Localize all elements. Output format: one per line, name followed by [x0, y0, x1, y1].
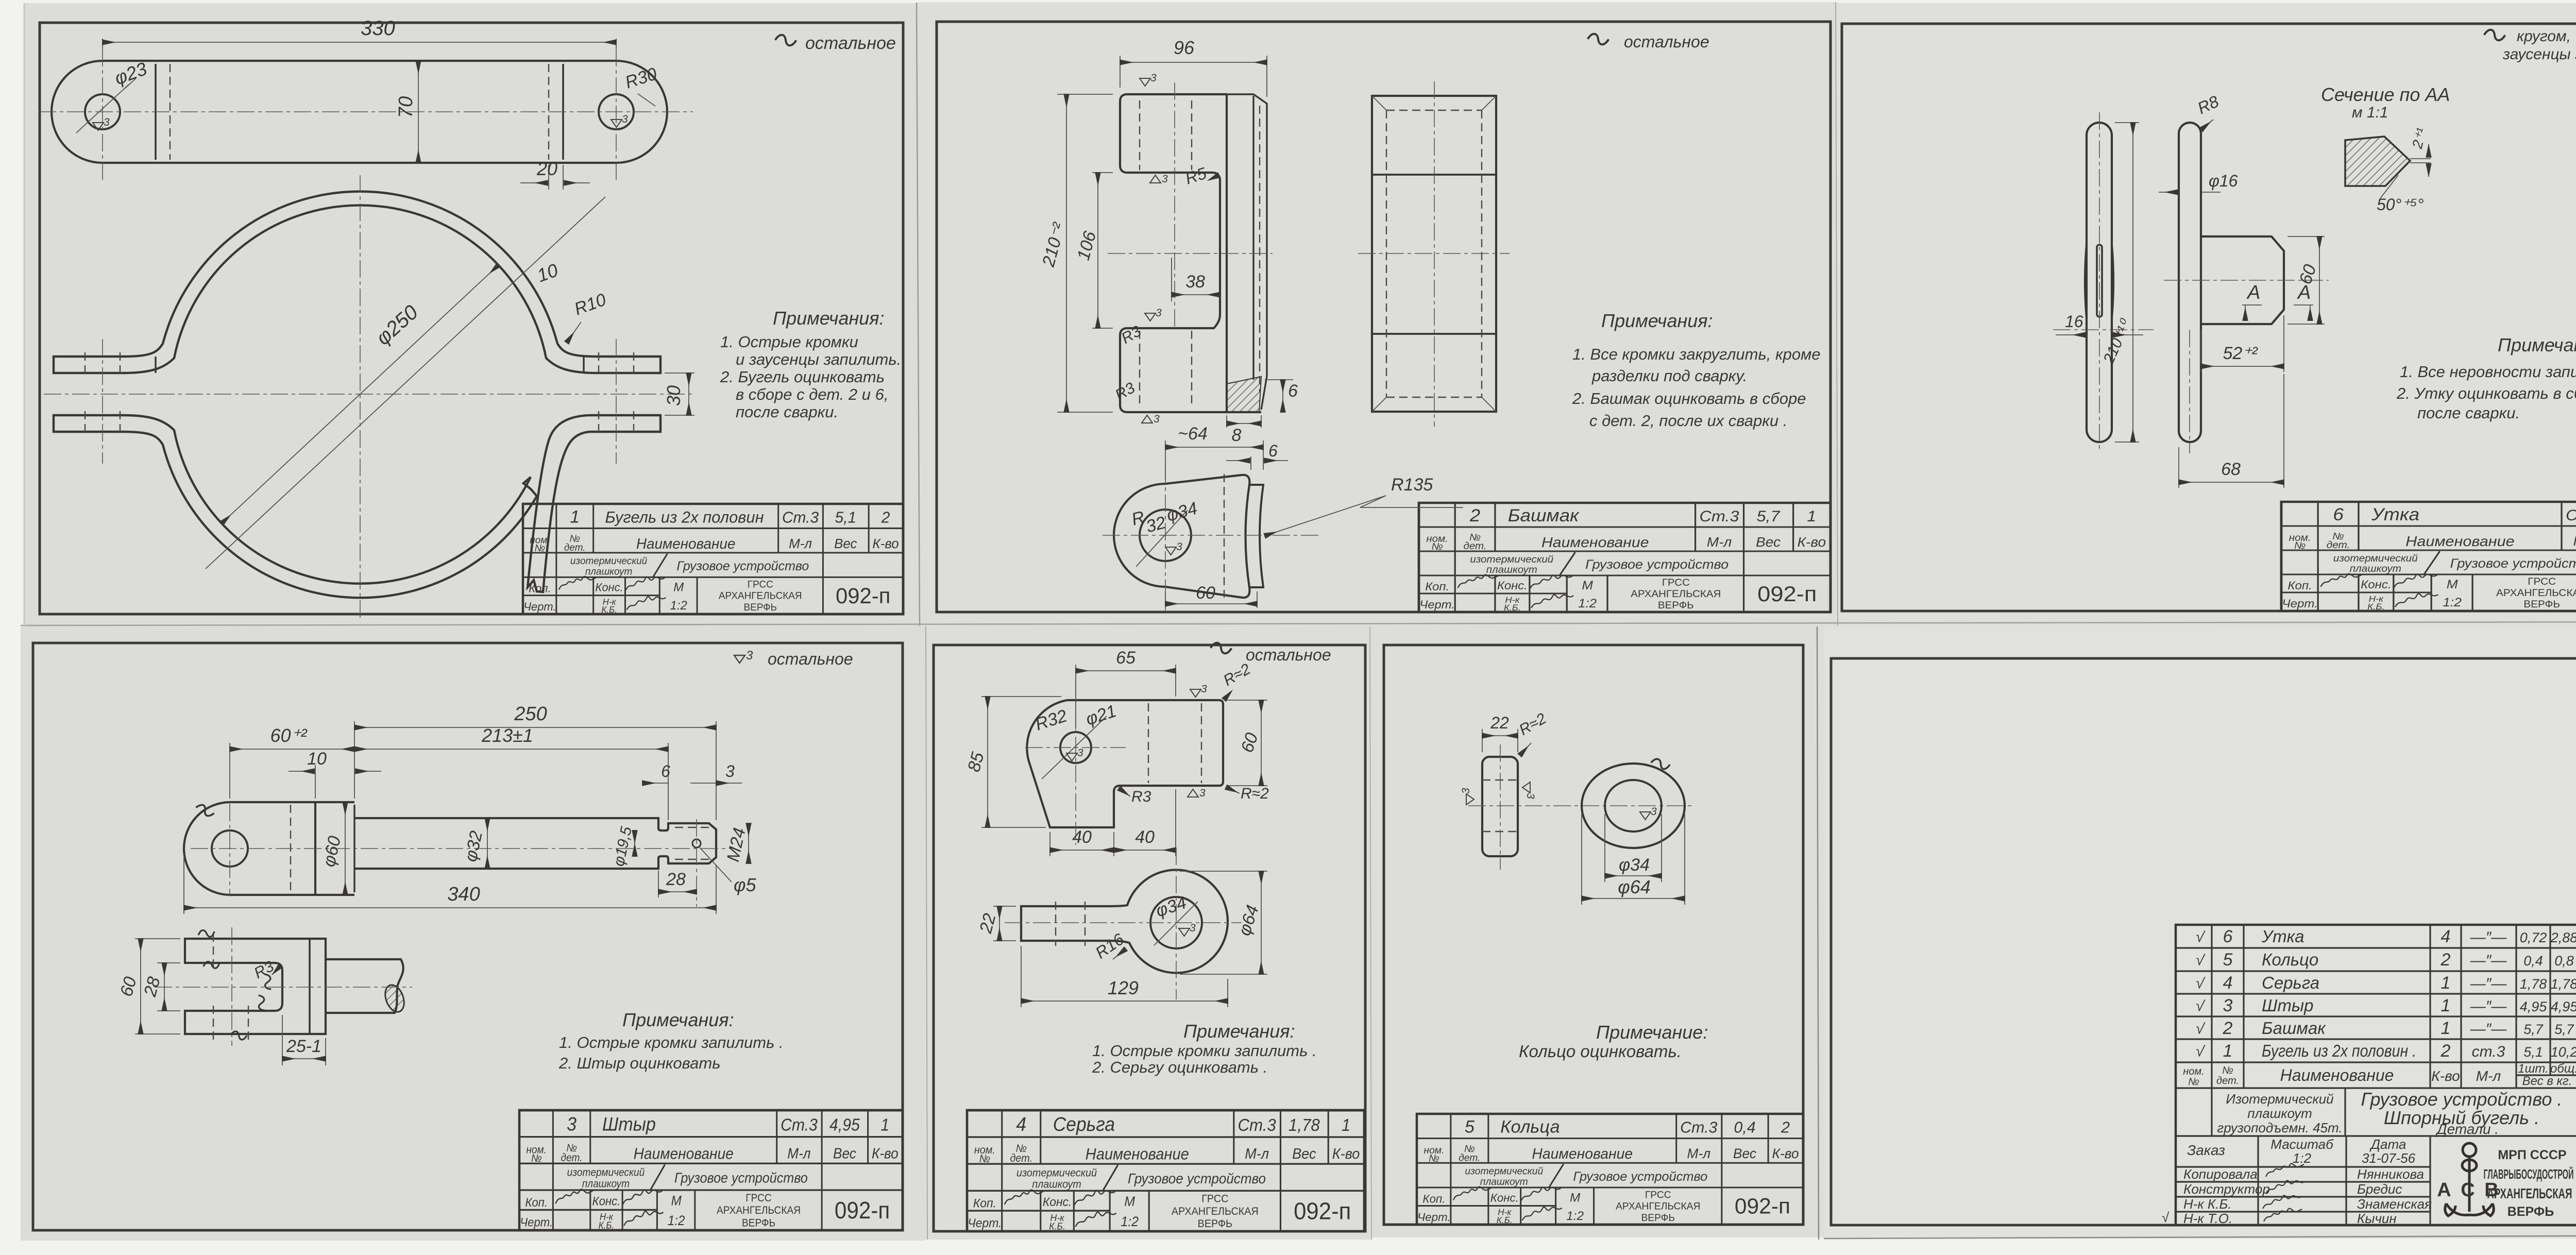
- svg-text:3: 3: [567, 1113, 577, 1135]
- svg-text:4,95: 4,95: [2551, 999, 2576, 1014]
- svg-text:40: 40: [1135, 827, 1155, 847]
- svg-text:АРХАНГЕЛЬСКАЯ: АРХАНГЕЛЬСКАЯ: [1172, 1206, 1259, 1217]
- svg-text:1:2: 1:2: [670, 599, 688, 613]
- svg-text:Башмак: Башмак: [1508, 506, 1580, 525]
- svg-text:213±1: 213±1: [481, 725, 533, 746]
- svg-text:5: 5: [1465, 1117, 1475, 1137]
- svg-text:М-л: М-л: [2476, 1068, 2501, 1084]
- svg-text:Кольца: Кольца: [1500, 1117, 1560, 1137]
- svg-text:60: 60: [1196, 583, 1215, 603]
- svg-text:250: 250: [514, 703, 547, 725]
- svg-text:М-л: М-л: [2573, 533, 2576, 549]
- svg-text:A: A: [2297, 282, 2311, 303]
- svg-text:092-п: 092-п: [1294, 1197, 1351, 1225]
- svg-text:Наименование: Наименование: [634, 1145, 734, 1162]
- svg-text:ВЕРФЬ: ВЕРФЬ: [1641, 1213, 1675, 1224]
- svg-text:дет.: дет.: [2327, 540, 2350, 551]
- svg-text:Изотермический: Изотермический: [2226, 1091, 2333, 1107]
- svg-text:1:2: 1:2: [2443, 596, 2462, 609]
- svg-text:изотермический: изотермический: [570, 556, 648, 567]
- svg-text:М-л: М-л: [789, 536, 812, 551]
- svg-text:1шт.: 1шт.: [2518, 1062, 2549, 1076]
- svg-text:дет.: дет.: [1464, 541, 1487, 552]
- svg-text:К.Б.: К.Б.: [1504, 603, 1521, 613]
- svg-text:Ст.3: Ст.3: [781, 1115, 818, 1134]
- svg-text:ВЕРФЬ: ВЕРФЬ: [2507, 1205, 2554, 1219]
- svg-text:φ16: φ16: [2209, 172, 2238, 190]
- svg-text:изотермический: изотермический: [1016, 1167, 1097, 1179]
- svg-text:К-во: К-во: [1798, 535, 1826, 550]
- svg-text:4: 4: [1016, 1113, 1026, 1135]
- svg-text:Коп.: Коп.: [525, 1195, 548, 1209]
- svg-text:Бугель из 2х половин .: Бугель из 2х половин .: [2262, 1041, 2416, 1060]
- svg-text:ВЕРФЬ: ВЕРФЬ: [742, 1217, 775, 1229]
- svg-text:Черт.: Черт.: [520, 1215, 553, 1229]
- svg-text:68: 68: [2221, 460, 2241, 479]
- svg-text:общ.: общ.: [2550, 1062, 2576, 1076]
- svg-text:—″—: —″—: [2470, 1021, 2507, 1038]
- svg-text:65: 65: [1116, 648, 1136, 668]
- svg-text:Вес: Вес: [1756, 535, 1781, 550]
- svg-text:5,7: 5,7: [2554, 1022, 2574, 1037]
- svg-text:Грузовое устройство .: Грузовое устройство .: [2361, 1089, 2563, 1110]
- svg-text:Коп.: Коп.: [529, 582, 551, 595]
- svg-text:плашкоут: плашкоут: [2350, 564, 2401, 574]
- svg-text:№: №: [535, 543, 546, 554]
- svg-text:3: 3: [2223, 996, 2233, 1015]
- svg-text:0,72: 0,72: [2520, 930, 2547, 945]
- svg-text:Ст.3: Ст.3: [1238, 1115, 1276, 1134]
- svg-text:плашкоут: плашкоут: [582, 1178, 630, 1190]
- svg-text:С: С: [2461, 1179, 2475, 1201]
- svg-text:К.Б.: К.Б.: [1497, 1215, 1513, 1225]
- svg-text:092-п: 092-п: [836, 584, 890, 608]
- svg-text:A: A: [2246, 282, 2260, 303]
- svg-text:Конс.: Конс.: [595, 581, 623, 593]
- svg-text:50°⁺⁵°: 50°⁺⁵°: [2377, 195, 2424, 214]
- svg-text:092-п: 092-п: [835, 1197, 890, 1224]
- svg-text:40: 40: [1072, 827, 1092, 847]
- svg-text:плашкоут: плашкоут: [2247, 1106, 2312, 1121]
- svg-text:Грузовое устройство: Грузовое устройство: [676, 559, 809, 573]
- svg-text:ГРСС: ГРСС: [1645, 1190, 1671, 1200]
- svg-text:Конс.: Конс.: [592, 1194, 621, 1208]
- svg-text:6: 6: [1268, 442, 1278, 460]
- svg-text:Грузовое устройство: Грузовое устройство: [674, 1170, 808, 1186]
- svg-text:дет.: дет.: [2216, 1075, 2239, 1087]
- svg-text:М: М: [2447, 578, 2458, 591]
- svg-text:5,1: 5,1: [835, 509, 857, 526]
- svg-text:М: М: [1570, 1191, 1581, 1205]
- svg-text:Дата: Дата: [2369, 1137, 2406, 1152]
- svg-text:Утка: Утка: [2261, 927, 2304, 946]
- svg-text:№: №: [2188, 1076, 2199, 1088]
- svg-text:0,4: 0,4: [1734, 1119, 1755, 1137]
- svg-text:М: М: [671, 1194, 682, 1209]
- svg-text:кругом,: кругом,: [2517, 28, 2571, 45]
- svg-text:Кольцо: Кольцо: [2262, 950, 2318, 969]
- svg-text:2. Серьгу оцинковать .: 2. Серьгу оцинковать .: [1092, 1058, 1267, 1076]
- svg-text:Копировала: Копировала: [2183, 1166, 2258, 1182]
- svg-text:ВЕРФЬ: ВЕРФЬ: [2523, 599, 2560, 610]
- svg-text:Детали .: Детали .: [2435, 1121, 2499, 1137]
- svg-text:остальное: остальное: [768, 650, 853, 668]
- svg-text:1: 1: [1342, 1115, 1350, 1134]
- svg-text:70: 70: [395, 96, 417, 118]
- svg-text:Утка: Утка: [2371, 504, 2419, 524]
- svg-text:Коп.: Коп.: [1422, 1192, 1445, 1205]
- svg-text:Ст.3: Ст.3: [2566, 506, 2576, 523]
- svg-text:8: 8: [1232, 426, 1242, 445]
- svg-text:2: 2: [1469, 506, 1481, 525]
- svg-text:3: 3: [746, 649, 753, 663]
- svg-text:Примечания:: Примечания:: [2498, 334, 2576, 355]
- svg-text:5,7: 5,7: [2523, 1022, 2544, 1037]
- svg-text:—″—: —″—: [2470, 952, 2507, 969]
- svg-text:Конс.: Конс.: [1490, 1191, 1519, 1204]
- svg-text:10: 10: [307, 749, 327, 769]
- svg-text:Грузовое устройство: Грузовое устройство: [1585, 557, 1728, 572]
- svg-text:Бугель из 2х половин: Бугель из 2х половин: [605, 508, 764, 526]
- svg-text:1. Острые кромки: 1. Острые кромки: [720, 333, 858, 351]
- svg-text:30: 30: [663, 385, 684, 406]
- svg-text:5,1: 5,1: [2523, 1044, 2543, 1060]
- svg-text:Бредис: Бредис: [2357, 1181, 2402, 1197]
- svg-text:52⁺²: 52⁺²: [2223, 344, 2258, 363]
- svg-text:2. Бугель оцинковать: 2. Бугель оцинковать: [720, 368, 885, 386]
- svg-text:Башмак: Башмак: [2262, 1019, 2326, 1038]
- svg-text:ГРСС: ГРСС: [1662, 578, 1690, 588]
- svg-text:φ5: φ5: [734, 874, 756, 895]
- svg-text:изотермический: изотермический: [2333, 553, 2418, 564]
- svg-text:М: М: [1582, 579, 1593, 592]
- svg-text:Наименование: Наименование: [2405, 533, 2514, 549]
- svg-text:дет.: дет.: [564, 542, 586, 553]
- svg-text:Примечания:: Примечания:: [773, 308, 885, 329]
- svg-text:R≈2: R≈2: [1241, 785, 1269, 802]
- svg-text:Кычин: Кычин: [2357, 1211, 2397, 1226]
- svg-text:Серьга: Серьга: [1053, 1113, 1115, 1135]
- svg-text:К-во: К-во: [2431, 1068, 2460, 1084]
- svg-text:Примечания:: Примечания:: [1183, 1021, 1295, 1042]
- svg-text:10,2: 10,2: [2551, 1044, 2576, 1060]
- svg-text:Грузовое устройство: Грузовое устройство: [1573, 1169, 1707, 1184]
- svg-text:Ст.3: Ст.3: [782, 509, 819, 526]
- svg-text:5,7: 5,7: [1757, 507, 1781, 525]
- svg-text:1: 1: [1807, 507, 1816, 525]
- svg-text:№: №: [1432, 541, 1443, 552]
- svg-text:1: 1: [2441, 1019, 2451, 1038]
- svg-text:φ64: φ64: [1618, 876, 1651, 897]
- svg-text:Вес: Вес: [833, 1145, 856, 1161]
- svg-text:Наименование: Наименование: [2280, 1066, 2394, 1084]
- svg-text:Наименование: Наименование: [636, 536, 736, 552]
- svg-text:22: 22: [1490, 714, 1509, 732]
- svg-text:1: 1: [2223, 1041, 2233, 1061]
- svg-text:после сварки.: после сварки.: [2417, 404, 2520, 422]
- svg-text:К.Б.: К.Б.: [599, 1220, 615, 1231]
- svg-text:Примечания:: Примечания:: [622, 1009, 734, 1030]
- svg-text:ГРСС: ГРСС: [745, 1192, 771, 1204]
- svg-text:М-л: М-л: [787, 1145, 810, 1161]
- svg-text:М: М: [1124, 1195, 1135, 1210]
- svg-text:№: №: [1429, 1153, 1439, 1164]
- svg-text:дет.: дет.: [561, 1152, 583, 1164]
- svg-text:3: 3: [725, 762, 735, 781]
- svg-text:Наименование: Наименование: [1541, 535, 1649, 551]
- svg-text:К-во: К-во: [872, 1145, 899, 1161]
- svg-text:31-07-56: 31-07-56: [2362, 1150, 2416, 1166]
- svg-text:№: №: [979, 1153, 990, 1165]
- svg-text:остальное: остальное: [1246, 646, 1331, 664]
- svg-text:Конс.: Конс.: [2361, 578, 2392, 591]
- svg-text:0,4: 0,4: [2523, 953, 2543, 969]
- svg-text:340: 340: [447, 884, 480, 905]
- svg-text:6: 6: [1288, 381, 1298, 401]
- svg-text:1:2: 1:2: [2293, 1150, 2312, 1166]
- svg-text:ВЕРФЬ: ВЕРФЬ: [744, 602, 777, 613]
- svg-text:дет.: дет.: [1459, 1152, 1480, 1163]
- svg-text:092-п: 092-п: [1735, 1194, 1790, 1219]
- svg-text:Черт.: Черт.: [2282, 597, 2317, 610]
- svg-text:330: 330: [361, 17, 395, 40]
- svg-text:плашкоут: плашкоут: [1486, 565, 1537, 575]
- svg-text:Черт.: Черт.: [523, 600, 556, 613]
- svg-text:1:2: 1:2: [1121, 1214, 1139, 1229]
- svg-text:1,78: 1,78: [1289, 1115, 1320, 1134]
- svg-text:0,8: 0,8: [2554, 953, 2574, 969]
- svg-text:К.Б.: К.Б.: [601, 605, 617, 615]
- svg-text:М: М: [673, 580, 684, 594]
- svg-text:Вес: Вес: [1292, 1145, 1316, 1162]
- svg-text:АРХАНГЕЛЬСКАЯ: АРХАНГЕЛЬСКАЯ: [2496, 588, 2576, 599]
- svg-text:1:2: 1:2: [668, 1213, 685, 1228]
- svg-text:R135: R135: [1391, 475, 1433, 495]
- svg-text:28: 28: [666, 870, 686, 889]
- svg-text:6: 6: [2333, 504, 2344, 524]
- svg-text:Наименование: Наименование: [1532, 1146, 1633, 1162]
- svg-text:Черт.: Черт.: [968, 1217, 1002, 1231]
- svg-text:60⁺²: 60⁺²: [270, 725, 308, 746]
- svg-text:остальное: остальное: [805, 33, 896, 53]
- svg-text:2. Башмак оцинковать в сборе: 2. Башмак оцинковать в сборе: [1572, 389, 1806, 408]
- svg-text:Сечение по АА: Сечение по АА: [2321, 84, 2450, 105]
- svg-text:1:2: 1:2: [1578, 597, 1597, 610]
- svg-text:плашкоут: плашкоут: [1480, 1177, 1528, 1188]
- svg-text:6: 6: [2223, 927, 2233, 946]
- svg-text:ВЕРФЬ: ВЕРФЬ: [1658, 600, 1694, 611]
- svg-text:Коп.: Коп.: [1425, 580, 1449, 593]
- svg-text:R3: R3: [1131, 788, 1151, 805]
- svg-text:2. Утку оцинковать в сборе с: 2. Утку оцинковать в сборе с дет.1,: [2396, 384, 2576, 402]
- svg-text:изотермический: изотермический: [567, 1167, 645, 1179]
- svg-text:—″—: —″—: [2470, 929, 2507, 946]
- svg-text:М-л: М-л: [1687, 1146, 1711, 1161]
- svg-text:Черт.: Черт.: [1419, 598, 1454, 611]
- svg-text:Грузовое устройство: Грузовое устройство: [2450, 556, 2576, 571]
- svg-text:φ34: φ34: [1619, 855, 1650, 875]
- svg-text:Вес: Вес: [834, 536, 857, 551]
- svg-text:4: 4: [2441, 927, 2451, 946]
- svg-text:ГРСС: ГРСС: [1201, 1193, 1228, 1205]
- svg-text:ном.: ном.: [2183, 1066, 2204, 1077]
- svg-text:АРХАНГЕЛЬСКАЯ: АРХАНГЕЛЬСКАЯ: [719, 591, 802, 602]
- svg-text:1,78: 1,78: [2551, 976, 2576, 992]
- svg-text:2,88: 2,88: [2550, 930, 2576, 945]
- svg-text:—″—: —″—: [2470, 975, 2507, 992]
- svg-text:Грузовое устройство: Грузовое устройство: [1128, 1171, 1266, 1186]
- svg-text:Примечания:: Примечания:: [1601, 310, 1713, 331]
- svg-text:1. Все кромки закруглить, кром: 1. Все кромки закруглить, кроме: [1572, 345, 1821, 363]
- svg-text:№: №: [531, 1152, 542, 1164]
- svg-text:плашкоут: плашкоут: [585, 566, 632, 577]
- svg-text:4,95: 4,95: [829, 1115, 860, 1134]
- svg-text:1: 1: [570, 507, 580, 527]
- svg-text:√: √: [2162, 1210, 2170, 1225]
- svg-text:1,78: 1,78: [2520, 976, 2547, 992]
- svg-text:К-во: К-во: [1772, 1146, 1799, 1161]
- svg-text:изотермический: изотермический: [1470, 554, 1553, 565]
- svg-text:и заусенцы запилить.: и заусенцы запилить.: [736, 350, 901, 368]
- svg-text:25-1: 25-1: [286, 1037, 321, 1056]
- svg-text:092-п: 092-п: [1757, 582, 1817, 606]
- svg-text:Заказ: Заказ: [2187, 1142, 2225, 1158]
- svg-text:1: 1: [2441, 996, 2451, 1015]
- svg-text:ст.3: ст.3: [2472, 1043, 2505, 1060]
- svg-text:АРХАНГЕЛЬСКАЯ: АРХАНГЕЛЬСКАЯ: [1616, 1201, 1700, 1212]
- svg-text:2: 2: [881, 509, 890, 526]
- svg-text:К-во: К-во: [1332, 1145, 1360, 1162]
- svg-text:М-л: М-л: [1707, 535, 1732, 550]
- svg-text:грузоподъемн. 45т.: грузоподъемн. 45т.: [2217, 1120, 2342, 1135]
- svg-text:Коп.: Коп.: [2287, 579, 2312, 592]
- svg-text:Ст.3: Ст.3: [1680, 1119, 1717, 1137]
- svg-text:К.Б.: К.Б.: [1049, 1220, 1065, 1232]
- svg-text:ВЕРФЬ: ВЕРФЬ: [1198, 1218, 1232, 1230]
- svg-text:после сварки.: после сварки.: [736, 403, 838, 421]
- svg-text:16: 16: [2065, 312, 2083, 331]
- svg-text:Знаменская: Знаменская: [2357, 1196, 2432, 1212]
- svg-text:~64: ~64: [1178, 424, 1208, 444]
- svg-text:изотермический: изотермический: [1465, 1166, 1543, 1177]
- svg-text:М-л: М-л: [1245, 1145, 1269, 1162]
- svg-text:Штыр: Штыр: [2262, 996, 2314, 1015]
- svg-text:К.Б.: К.Б.: [2367, 602, 2384, 612]
- svg-text:Кольцо оцинковать.: Кольцо оцинковать.: [1519, 1042, 1682, 1061]
- svg-text:№: №: [2294, 540, 2306, 551]
- svg-text:АРХАНГЕЛЬСКАЯ: АРХАНГЕЛЬСКАЯ: [2487, 1185, 2572, 1201]
- svg-text:20: 20: [536, 158, 557, 179]
- svg-text:ГРСС: ГРСС: [2528, 576, 2556, 587]
- svg-text:5: 5: [2223, 950, 2233, 970]
- svg-text:1. Все неровности запилить: 1. Все неровности запилить: [2400, 363, 2576, 381]
- svg-text:МРП СССР: МРП СССР: [2498, 1148, 2566, 1162]
- svg-text:разделки под сварку.: разделки под сварку.: [1591, 367, 1747, 385]
- svg-text:Конс.: Конс.: [1043, 1196, 1072, 1210]
- svg-text:Наименование: Наименование: [1086, 1146, 1189, 1163]
- svg-text:ГЛАВРЫБОСУДОСТРОЙ: ГЛАВРЫБОСУДОСТРОЙ: [2484, 1166, 2574, 1182]
- svg-text:1. Острые кромки запилить .: 1. Острые кромки запилить .: [1092, 1042, 1317, 1060]
- svg-text:Нянникова: Нянникова: [2357, 1166, 2424, 1182]
- svg-text:Ст.3: Ст.3: [1700, 507, 1740, 525]
- svg-text:4: 4: [2223, 973, 2233, 993]
- svg-text:дет.: дет.: [1010, 1152, 1032, 1164]
- svg-text:ГРСС: ГРСС: [748, 579, 773, 590]
- svg-text:остальное: остальное: [1624, 32, 1709, 51]
- svg-text:Н-к К.Б.: Н-к К.Б.: [2183, 1196, 2232, 1212]
- svg-text:Масштаб: Масштаб: [2270, 1137, 2334, 1152]
- svg-text:плашкоут: плашкоут: [1032, 1179, 1081, 1191]
- svg-text:6: 6: [661, 762, 670, 781]
- svg-text:2: 2: [2223, 1019, 2233, 1038]
- svg-text:4,95: 4,95: [2520, 999, 2548, 1014]
- svg-text:38: 38: [1185, 272, 1205, 292]
- svg-text:96: 96: [1174, 37, 1195, 58]
- svg-text:2. Штыр оцинковать: 2. Штыр оцинковать: [558, 1054, 721, 1072]
- svg-text:Черт.: Черт.: [1417, 1211, 1450, 1224]
- svg-text:с дет. 2, после их сварки .: с дет. 2, после их сварки .: [1589, 412, 1787, 430]
- svg-text:2: 2: [2441, 950, 2451, 970]
- svg-text:1: 1: [2441, 973, 2451, 993]
- svg-text:Конструктор: Конструктор: [2183, 1181, 2270, 1197]
- svg-text:2: 2: [1781, 1119, 1790, 1137]
- svg-text:1:2: 1:2: [1566, 1209, 1584, 1223]
- svg-text:в сборе с дет. 2 и 6,: в сборе с дет. 2 и 6,: [736, 385, 888, 403]
- svg-text:заусенцы запилить: заусенцы запилить: [2502, 46, 2576, 63]
- svg-text:Примечание:: Примечание:: [1596, 1022, 1708, 1043]
- svg-text:1. Острые кромки запилить .: 1. Острые кромки запилить .: [559, 1033, 784, 1052]
- svg-text:Конс.: Конс.: [1497, 579, 1528, 592]
- svg-text:А: А: [2437, 1179, 2451, 1201]
- svg-text:Н-к Т.О.: Н-к Т.О.: [2183, 1211, 2232, 1226]
- svg-text:1: 1: [880, 1115, 889, 1134]
- svg-text:м 1:1: м 1:1: [2352, 104, 2388, 121]
- svg-text:Вес: Вес: [1733, 1146, 1756, 1161]
- svg-text:Коп.: Коп.: [973, 1197, 996, 1211]
- svg-text:Серьга: Серьга: [2262, 973, 2319, 992]
- svg-text:АРХАНГЕЛЬСКАЯ: АРХАНГЕЛЬСКАЯ: [717, 1205, 801, 1216]
- svg-text:129: 129: [1108, 977, 1139, 998]
- svg-text:2: 2: [2441, 1041, 2451, 1061]
- svg-text:№: №: [2222, 1065, 2233, 1076]
- svg-text:—″—: —″—: [2470, 998, 2507, 1015]
- svg-text:АРХАНГЕЛЬСКАЯ: АРХАНГЕЛЬСКАЯ: [1631, 589, 1721, 600]
- svg-text:Вес в кг.: Вес в кг.: [2522, 1074, 2572, 1088]
- svg-text:К-во: К-во: [872, 536, 899, 551]
- svg-text:Штыр: Штыр: [602, 1113, 656, 1135]
